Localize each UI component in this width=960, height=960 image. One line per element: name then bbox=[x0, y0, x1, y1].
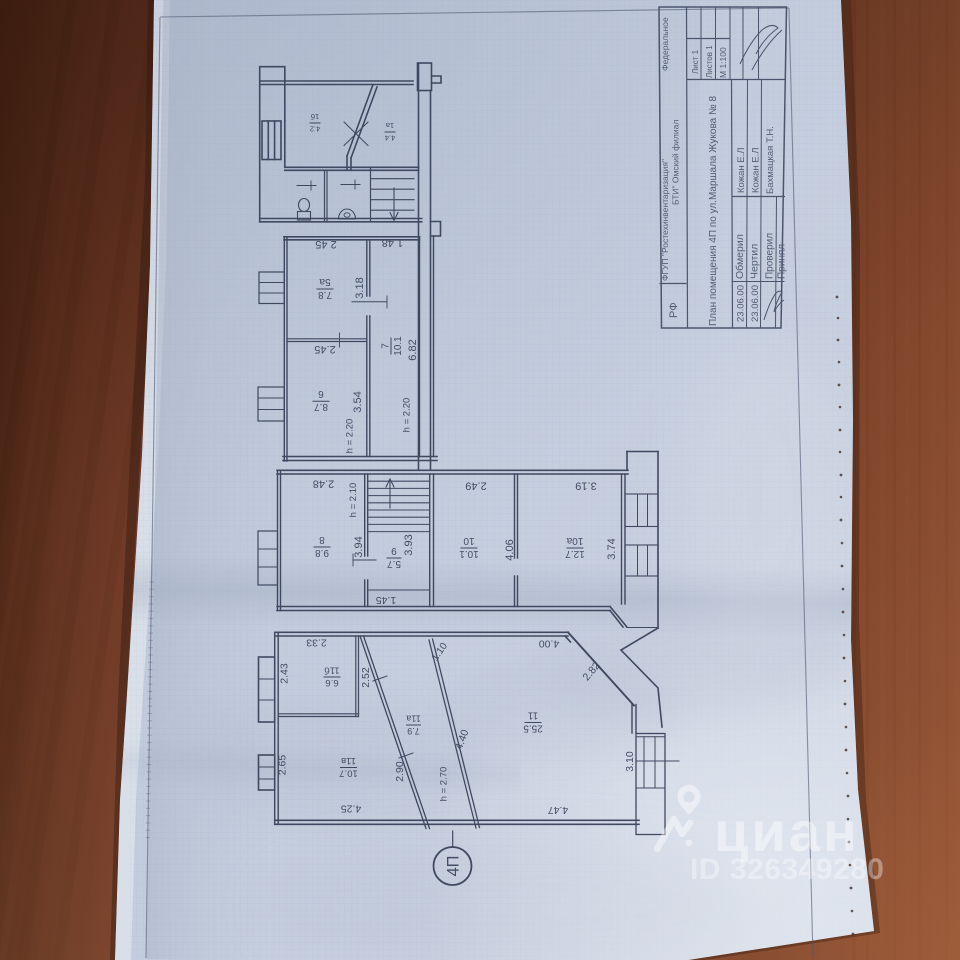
svg-text:4.47: 4.47 bbox=[548, 804, 569, 816]
svg-text:6: 6 bbox=[318, 388, 324, 399]
svg-text:2.45: 2.45 bbox=[314, 343, 335, 355]
svg-text:Федеральное: Федеральное bbox=[660, 17, 670, 71]
svg-text:2.90: 2.90 bbox=[394, 761, 406, 782]
svg-text:11в: 11в bbox=[341, 755, 356, 766]
svg-text:5.7: 5.7 bbox=[387, 558, 401, 569]
svg-text:Кожан Е.Л: Кожан Е.Л bbox=[751, 148, 762, 193]
svg-text:Бахмацкая Т.Н.: Бахмацкая Т.Н. bbox=[765, 126, 776, 194]
svg-text:9: 9 bbox=[391, 545, 397, 556]
svg-text:БТИ" Омский филиал: БТИ" Омский филиал bbox=[671, 120, 681, 205]
svg-text:7: 7 bbox=[380, 343, 391, 349]
svg-text:8.7: 8.7 bbox=[314, 401, 328, 412]
svg-text:9.8: 9.8 bbox=[315, 547, 329, 558]
svg-text:6.6: 6.6 bbox=[325, 677, 338, 688]
svg-text:3.10: 3.10 bbox=[624, 751, 636, 772]
svg-text:4.4: 4.4 bbox=[385, 134, 395, 143]
svg-text:2.52: 2.52 bbox=[360, 667, 372, 688]
svg-text:10а: 10а bbox=[566, 535, 583, 546]
svg-text:1б: 1б bbox=[311, 112, 319, 121]
svg-text:План помещения 4П по ул.Маршал: План помещения 4П по ул.Маршала Жукова №… bbox=[708, 96, 719, 326]
svg-text:1а: 1а bbox=[385, 121, 394, 130]
svg-text:6.82: 6.82 bbox=[407, 339, 419, 360]
svg-text:12.7: 12.7 bbox=[565, 548, 585, 559]
svg-text:2.48: 2.48 bbox=[313, 478, 334, 490]
svg-text:2.65: 2.65 bbox=[276, 755, 288, 776]
svg-text:3.18: 3.18 bbox=[354, 277, 366, 298]
svg-text:4.2: 4.2 bbox=[310, 125, 320, 134]
svg-text:h = 2.70: h = 2.70 bbox=[438, 767, 449, 802]
svg-text:10: 10 bbox=[463, 535, 475, 546]
svg-text:4.25: 4.25 bbox=[341, 803, 362, 815]
svg-text:М 1:100: М 1:100 bbox=[718, 47, 728, 78]
svg-text:h = 2.10: h = 2.10 bbox=[348, 483, 359, 518]
svg-text:Чертил: Чертил bbox=[749, 244, 761, 279]
svg-text:h = 2.20: h = 2.20 bbox=[401, 398, 412, 433]
svg-text:5а: 5а bbox=[319, 276, 331, 287]
svg-text:3.19: 3.19 bbox=[575, 480, 596, 492]
svg-text:3.54: 3.54 bbox=[352, 391, 364, 412]
svg-text:h = 2.20: h = 2.20 bbox=[344, 419, 355, 454]
svg-text:Лист 1: Лист 1 bbox=[691, 49, 700, 74]
svg-text:1.45: 1.45 bbox=[376, 594, 397, 606]
svg-text:Принял: Принял bbox=[777, 244, 788, 279]
svg-text:Проверил: Проверил bbox=[765, 233, 776, 279]
svg-text:3.74: 3.74 bbox=[606, 538, 618, 559]
svg-text:8: 8 bbox=[319, 534, 325, 545]
svg-text:10.1: 10.1 bbox=[459, 548, 479, 559]
svg-text:23.06.00: 23.06.00 bbox=[736, 285, 747, 322]
svg-text:25.5: 25.5 bbox=[523, 722, 543, 733]
svg-text:Листов 1: Листов 1 bbox=[705, 45, 714, 78]
svg-text:4.00: 4.00 bbox=[539, 638, 560, 650]
svg-text:7.8: 7.8 bbox=[318, 289, 332, 300]
svg-text:ФГУП "Ростехинвентаризация": ФГУП "Ростехинвентаризация" bbox=[660, 159, 670, 281]
svg-text:Обмерил: Обмерил bbox=[734, 234, 746, 279]
svg-text:10.1: 10.1 bbox=[393, 336, 404, 356]
svg-text:11а: 11а bbox=[406, 714, 420, 724]
svg-text:3.93: 3.93 bbox=[403, 534, 415, 555]
svg-text:11б: 11б bbox=[324, 664, 340, 675]
svg-text:2.49: 2.49 bbox=[465, 480, 486, 492]
svg-text:2.33: 2.33 bbox=[306, 637, 327, 649]
svg-text:Кожан Е.Л: Кожан Е.Л bbox=[736, 148, 747, 193]
svg-text:23.06.00: 23.06.00 bbox=[750, 285, 761, 322]
svg-text:1 48: 1 48 bbox=[382, 237, 403, 249]
svg-text:4.06: 4.06 bbox=[504, 539, 516, 560]
svg-text:3.94: 3.94 bbox=[353, 536, 365, 557]
svg-text:7.9: 7.9 bbox=[407, 726, 420, 736]
svg-text:2.43: 2.43 bbox=[278, 663, 290, 684]
svg-text:4П: 4П bbox=[444, 855, 462, 876]
svg-text:11: 11 bbox=[527, 710, 538, 721]
svg-text:РФ: РФ bbox=[668, 302, 680, 318]
svg-text:10.7: 10.7 bbox=[339, 768, 358, 779]
svg-text:ID 326349280: ID 326349280 bbox=[690, 853, 885, 886]
